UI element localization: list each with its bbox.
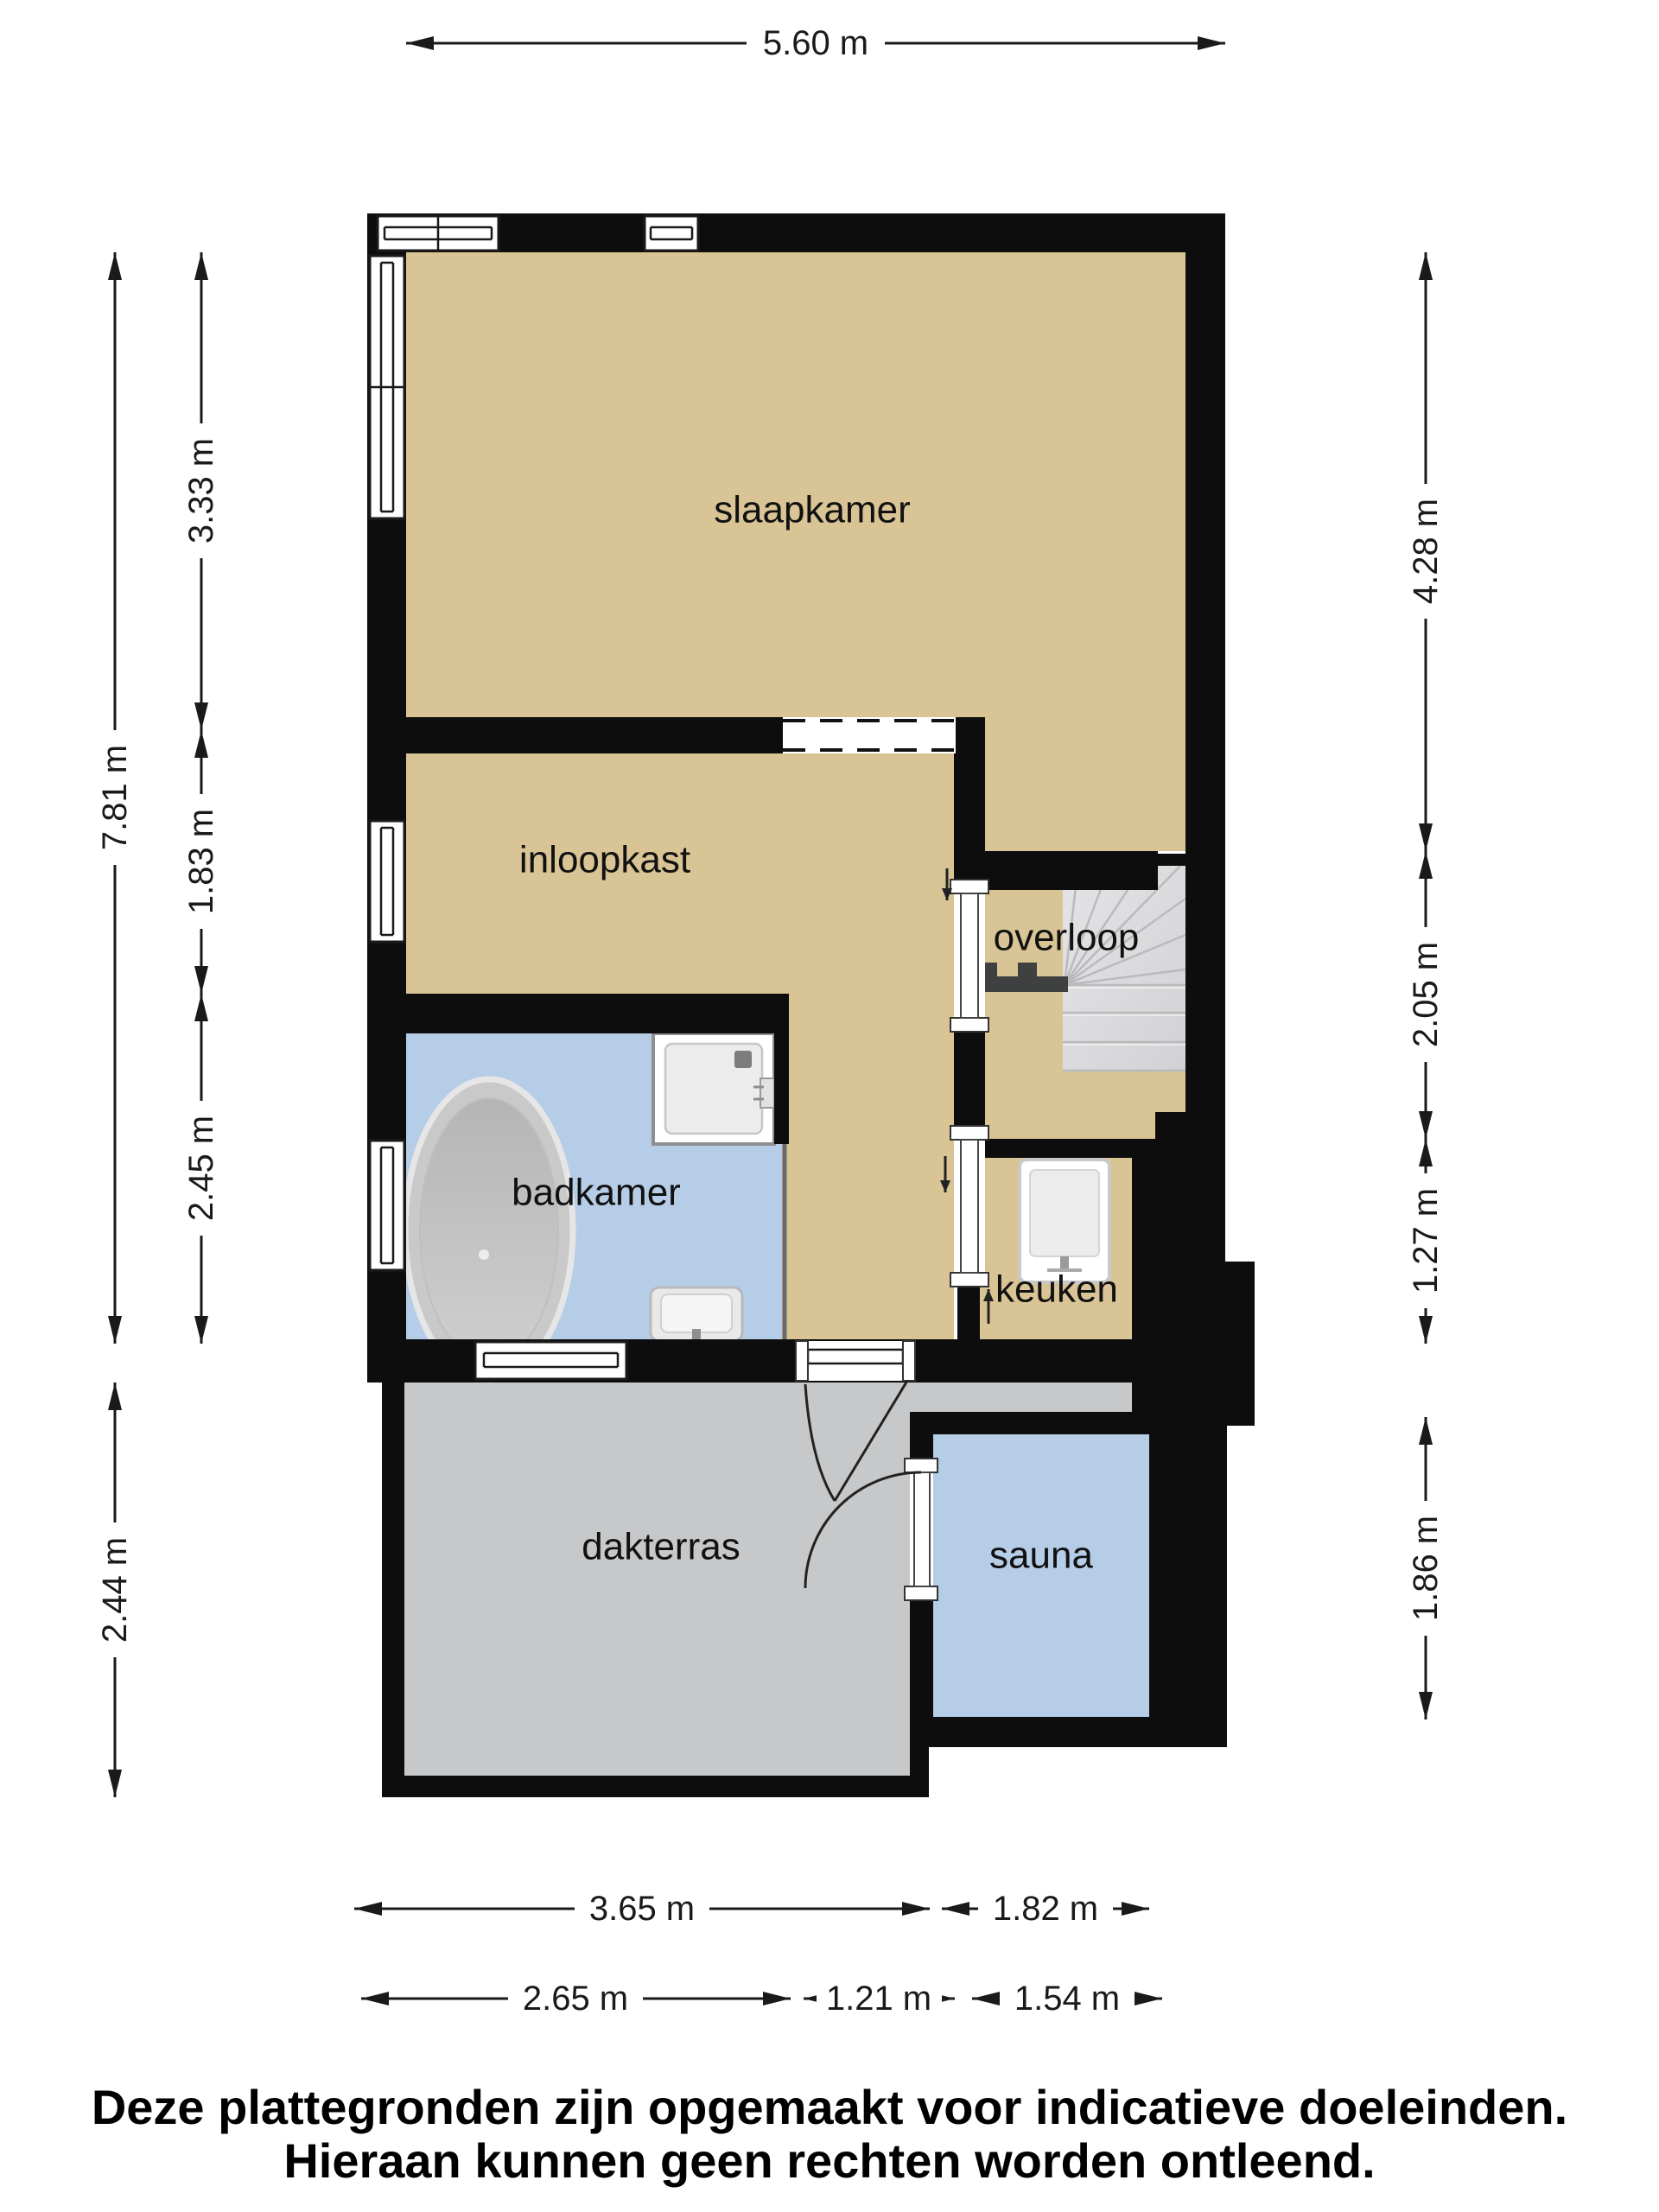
dimension-bottom1-seg2: 1.82 m: [942, 1887, 1149, 1930]
dimension-label: 2.44 m: [96, 1537, 134, 1643]
dimension-left-seg1: 3.33 m: [179, 252, 224, 730]
wall: [971, 851, 1158, 890]
window-icon: [370, 1141, 404, 1270]
dimension-left-seg3: 2.45 m: [179, 994, 224, 1344]
dimension-label: 2.45 m: [182, 1116, 220, 1221]
dimension-right-seg3: 1.27 m: [1403, 1139, 1448, 1344]
floor-plan-page: slaapkamer inloopkast overloop badkamer …: [0, 0, 1659, 2212]
wall: [1155, 1112, 1185, 1139]
dimension-label: 2.05 m: [1407, 942, 1445, 1047]
wall: [954, 1024, 985, 1132]
dimension-label: 1.86 m: [1407, 1516, 1445, 1621]
dimension-label: 3.33 m: [182, 438, 220, 543]
room-label-keuken: keuken: [995, 1268, 1118, 1311]
wall: [774, 1033, 789, 1144]
dimension-label: 5.60 m: [763, 24, 868, 62]
room-label-badkamer: badkamer: [512, 1172, 681, 1214]
dimension-right-seg1: 4.28 m: [1403, 252, 1448, 851]
dimension-label: 1.21 m: [826, 1980, 931, 2018]
door-icon: [950, 880, 988, 1032]
dashed-opening-icon: [783, 717, 956, 753]
shower-icon: [653, 1033, 774, 1144]
wall: [1158, 854, 1185, 866]
disclaimer-line-2: Hieraan kunnen geen rechten worden ontle…: [283, 2133, 1375, 2188]
room-label-dakterras: dakterras: [582, 1526, 740, 1568]
room-area-dakterras: [404, 1382, 910, 1776]
dimension-label: 3.65 m: [589, 1890, 695, 1928]
door-icon: [950, 1126, 988, 1287]
kitchen-sink-icon: [1020, 1160, 1109, 1282]
dimension-label: 2.65 m: [523, 1980, 628, 2018]
wall: [382, 1776, 929, 1797]
dimension-right-seg4: 1.86 m: [1403, 1417, 1448, 1719]
dimension-bottom2-seg3: 1.54 m: [972, 1977, 1162, 2020]
dimension-bottom2-seg1: 2.65 m: [361, 1977, 791, 2020]
dimension-label: 1.83 m: [182, 809, 220, 914]
wall: [1132, 1139, 1225, 1426]
room-area-slaapkamer: [406, 252, 1185, 717]
room-area-slaapkamer-lower: [985, 717, 1185, 851]
room-label-sauna: sauna: [989, 1535, 1093, 1577]
dimension-label: 1.27 m: [1407, 1188, 1445, 1294]
dimension-left-total: 7.81 m: [92, 252, 137, 1344]
wall: [1149, 1412, 1227, 1747]
floor-plan-canvas: slaapkamer inloopkast overloop badkamer …: [0, 0, 1659, 2212]
dimension-label: 4.28 m: [1407, 499, 1445, 604]
wall: [910, 1717, 1227, 1747]
bathtub-icon: [405, 1079, 573, 1380]
window-icon: [370, 256, 404, 518]
wall: [976, 1139, 1155, 1158]
dimension-top: 5.60 m: [406, 22, 1225, 65]
room-label-slaapkamer: slaapkamer: [714, 489, 910, 531]
wall: [956, 717, 985, 753]
wall: [1185, 213, 1225, 1158]
room-area-dakterras-strip: [910, 1382, 1135, 1412]
wall: [406, 717, 783, 753]
dimension-bottom2-seg2: 1.21 m: [804, 1977, 955, 2020]
bathroom-sink-icon: [651, 1287, 742, 1341]
dimension-label: 7.81 m: [96, 745, 134, 850]
room-area-hall: [782, 994, 954, 1339]
disclaimer-line-1: Deze plattegronden zijn opgemaakt voor i…: [92, 2080, 1567, 2134]
room-label-overloop: overloop: [994, 917, 1140, 959]
dimension-left-lower: 2.44 m: [92, 1382, 137, 1797]
stairs-icon: [1063, 864, 1185, 1071]
dimension-label: 1.82 m: [993, 1890, 1098, 1928]
window-icon: [645, 216, 698, 251]
window-icon: [475, 1342, 626, 1379]
wall: [382, 1382, 404, 1797]
wall: [957, 1279, 980, 1339]
room-label-inloopkast: inloopkast: [519, 839, 690, 881]
window-icon: [378, 216, 499, 251]
dimension-label: 1.54 m: [1014, 1980, 1120, 2018]
window-icon: [370, 821, 404, 942]
dimension-left-seg2: 1.83 m: [179, 730, 224, 994]
dimension-right-seg2: 2.05 m: [1403, 851, 1448, 1139]
wall: [406, 994, 789, 1033]
dimension-bottom1-seg1: 3.65 m: [354, 1887, 930, 1930]
